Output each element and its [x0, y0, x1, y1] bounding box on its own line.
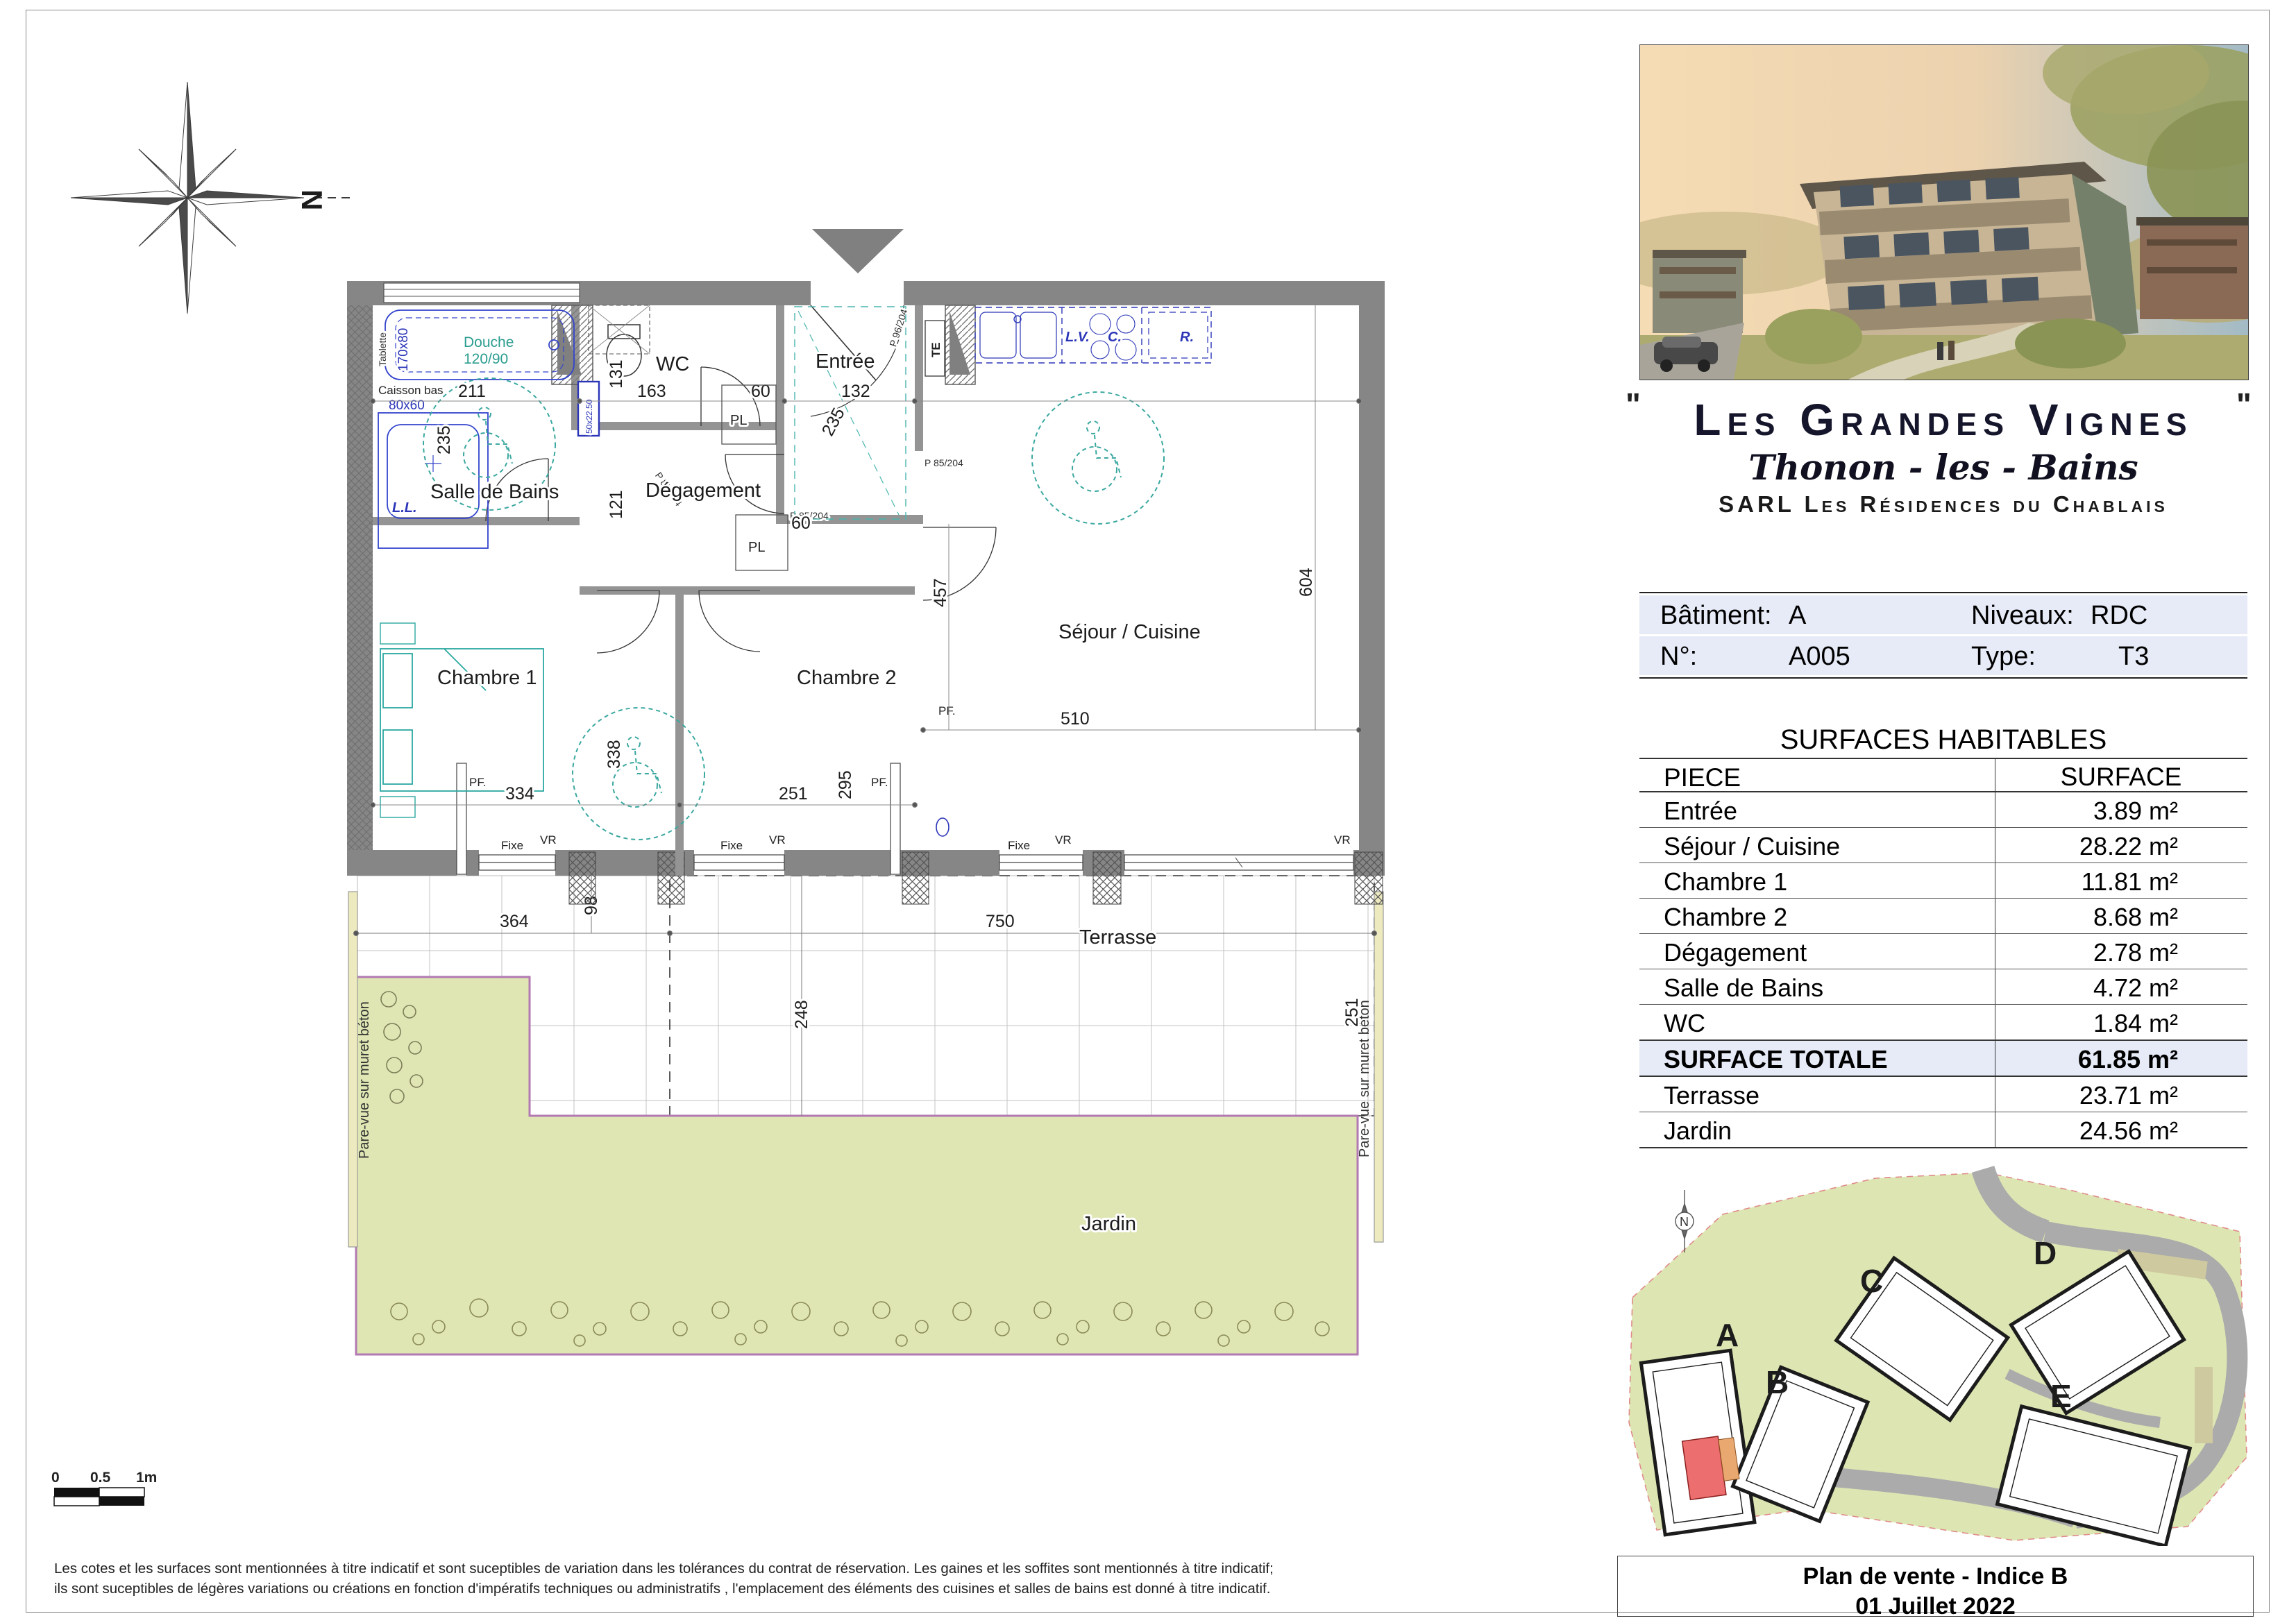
dim-211: 211 — [458, 382, 486, 401]
site-label-a: A — [1716, 1317, 1739, 1353]
surface-row-jardin: Jardin 24.56 m² — [1639, 1112, 2247, 1147]
surface-row-chambre1: Chambre 1 11.81 m² — [1639, 863, 2247, 899]
batiment-value: A — [1789, 601, 1806, 631]
svg-text:0.5: 0.5 — [90, 1470, 111, 1486]
svg-text:50x22.50: 50x22.50 — [584, 399, 594, 434]
dim-457: 457 — [931, 578, 950, 607]
dim-60a: 60 — [751, 382, 770, 401]
info-row-1: Bâtiment: A Niveaux: RDC — [1639, 595, 2247, 634]
fixe-label-ch1: Fixe — [501, 839, 523, 852]
col-piece: PIECE — [1664, 763, 1741, 792]
vr-label-ch1: VR — [540, 833, 557, 847]
dim-510: 510 — [1061, 709, 1090, 729]
disclaimer-line2: ils sont suceptibles de légères variatio… — [54, 1579, 1297, 1599]
sdb-label: Salle de Bains — [430, 481, 559, 503]
type-label: Type: — [1971, 642, 2036, 672]
footer-plan-indice: Plan de vente - Indice B — [1618, 1563, 2253, 1590]
type-value: T3 — [2118, 642, 2149, 672]
wc-label: WC — [656, 353, 689, 375]
tablette-label: Tablette — [377, 332, 388, 366]
svg-text:TE: TE — [929, 342, 943, 357]
dim-163: 163 — [637, 382, 666, 401]
project-company: SARL Les Résidences du Chablais — [1645, 491, 2242, 518]
site-label-b: B — [1766, 1364, 1789, 1400]
pf-label-ch1: PF. — [469, 776, 487, 789]
site-label-c: C — [1860, 1263, 1883, 1299]
te-panel: TE — [925, 321, 945, 376]
ll-label: L.L. — [392, 500, 417, 516]
pf-label-sejour: PF. — [938, 704, 956, 717]
numero-label: N°: — [1660, 642, 1697, 672]
disclaimer: Les cotes et les surfaces sont mentionné… — [54, 1558, 1297, 1599]
dim-750: 750 — [986, 912, 1015, 931]
sejour-label: Séjour / Cuisine — [1058, 621, 1201, 643]
building-rendering-photo — [1639, 44, 2249, 380]
dim-lines — [371, 305, 1362, 808]
surface-row-entree: Entrée 3.89 m² — [1639, 792, 2247, 828]
disclaimer-line1: Les cotes et les surfaces sont mentionné… — [54, 1558, 1297, 1579]
dim-251-terrasse: 251 — [1342, 998, 1362, 1027]
svg-text:1m: 1m — [136, 1470, 157, 1486]
site-label-d: D — [2034, 1235, 2057, 1271]
dim-131: 131 — [607, 359, 626, 389]
plan-de-vente-page: Jardin Pare-vue sur muret béton Pare-vue… — [0, 0, 2296, 1623]
pf-label-ch2: PF. — [871, 776, 888, 789]
batiment-label: Bâtiment: — [1660, 601, 1772, 631]
dim-295: 295 — [836, 770, 855, 799]
surfaces-title: SURFACES HABITABLES — [1639, 723, 2247, 759]
degagement-label: Dégagement — [645, 479, 761, 502]
compass-north-label: N — [296, 189, 328, 210]
surface-row-wc: WC 1.84 m² — [1639, 1005, 2247, 1040]
dim-604: 604 — [1297, 568, 1316, 597]
surface-row-total: SURFACE TOTALE 61.85 m² — [1639, 1040, 2247, 1077]
dim-251-ch2: 251 — [779, 784, 808, 804]
terrasse-label: Terrasse — [1079, 926, 1156, 949]
entrance-door-label: P 96/204 — [887, 307, 910, 348]
plan-marker-o — [936, 818, 949, 836]
project-title: Les Grandes Vignes — [1645, 394, 2242, 445]
entree-label: Entrée — [816, 350, 875, 373]
numero-value: A005 — [1789, 642, 1850, 672]
douche-size: 120/90 — [464, 351, 508, 367]
site-compass-n: N — [1680, 1215, 1689, 1229]
wheelchair-symbols — [423, 378, 1164, 840]
floor-plan-drawing: Jardin Pare-vue sur muret béton Pare-vue… — [0, 0, 1617, 1623]
surface-row-sejour: Séjour / Cuisine 28.22 m² — [1639, 828, 2247, 863]
dim-334: 334 — [505, 784, 534, 804]
fixe-label-ch2: Fixe — [720, 839, 743, 852]
surface-row-degagement: Dégagement 2.78 m² — [1639, 934, 2247, 969]
dim-121: 121 — [607, 490, 626, 519]
surfaces-header: PIECE SURFACE — [1639, 759, 2247, 792]
pl-label-1: PL — [730, 413, 747, 428]
dim-364: 364 — [500, 912, 529, 931]
kitchen-counter — [975, 307, 1211, 363]
footer-date: 01 Juillet 2022 — [1618, 1593, 2253, 1620]
site-plan: N — [1619, 1166, 2252, 1546]
dim-235-sdb: 235 — [434, 425, 454, 454]
door-label-2: P 85/204 — [925, 457, 963, 468]
lv-label: L.V. — [1065, 330, 1090, 345]
dim-132: 132 — [841, 382, 870, 401]
walls — [347, 281, 1385, 904]
niveaux-value: RDC — [2091, 601, 2147, 631]
fixe-label-sejour: Fixe — [1008, 839, 1030, 852]
unit-info-table: Bâtiment: A Niveaux: RDC N°: A005 Type: … — [1639, 592, 2247, 679]
col-surface: SURFACE — [1995, 763, 2247, 792]
washbasin-wc: 50x22.50 — [578, 382, 599, 436]
bain-size: 170x80 — [396, 328, 411, 371]
info-row-2: N°: A005 Type: T3 — [1639, 636, 2247, 675]
svg-text:Pare-vue sur muret béton: Pare-vue sur muret béton — [357, 1001, 372, 1159]
pl-label-2: PL — [748, 540, 765, 555]
svg-text:0: 0 — [51, 1470, 60, 1486]
scale-bar: 0 0.5 1m — [51, 1470, 157, 1506]
wheelchair-sejour — [1032, 392, 1164, 524]
surface-row-chambre2: Chambre 2 8.68 m² — [1639, 899, 2247, 934]
c-label: C. — [1108, 330, 1122, 345]
site-label-e: E — [2050, 1378, 2072, 1414]
vasque-size: 80x60 — [389, 398, 425, 413]
dim-248: 248 — [792, 1000, 811, 1029]
compass-rose: N — [71, 82, 354, 314]
douche-label: Douche — [464, 334, 514, 350]
dim-338: 338 — [605, 740, 624, 769]
surface-row-sdb: Salle de Bains 4.72 m² — [1639, 969, 2247, 1005]
dim-235-entree: 235 — [818, 405, 849, 439]
jardin-label: Jardin — [1081, 1213, 1136, 1235]
quote-left: " — [1626, 386, 1641, 423]
vr-label-sejour: VR — [1055, 833, 1072, 847]
entrance-arrow — [812, 229, 904, 273]
caisson-label: Caisson bas — [378, 384, 444, 397]
chambre2-label: Chambre 2 — [797, 667, 896, 689]
chambre1-label: Chambre 1 — [437, 667, 537, 689]
project-city: Thonon - les - Bains — [1645, 447, 2242, 488]
wheelchair-chambres — [573, 708, 704, 840]
vr-label-baie: VR — [1334, 833, 1351, 847]
dim-60b: 60 — [791, 513, 811, 533]
r-label: R. — [1180, 330, 1194, 345]
vr-label-ch2: VR — [769, 833, 786, 847]
niveaux-label: Niveaux: — [1971, 601, 2074, 631]
footer-cartouche: Plan de vente - Indice B 01 Juillet 2022 — [1617, 1556, 2254, 1617]
surfaces-table: SURFACES HABITABLES PIECE SURFACE Entrée… — [1639, 723, 2247, 1148]
surface-row-terrasse: Terrasse 23.71 m² — [1639, 1077, 2247, 1112]
